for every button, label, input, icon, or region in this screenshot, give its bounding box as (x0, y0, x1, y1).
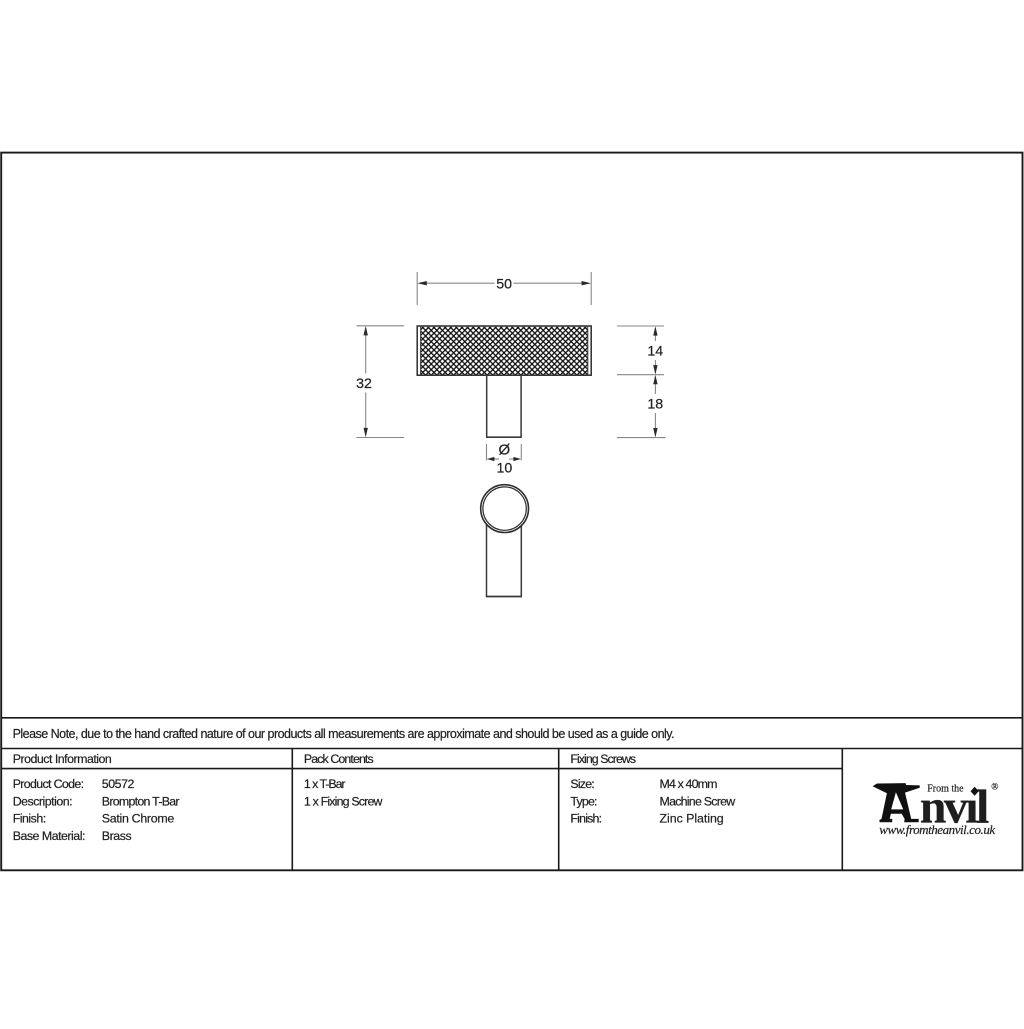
svg-text:1 x Fixing Screw: 1 x Fixing Screw (304, 794, 383, 808)
svg-text:10: 10 (497, 461, 513, 477)
svg-text:Type:: Type: (570, 794, 597, 808)
svg-text:Finish:: Finish: (570, 812, 601, 826)
svg-text:Brass: Brass (102, 829, 132, 843)
svg-text:18: 18 (647, 396, 663, 412)
svg-text:Size:: Size: (570, 777, 594, 791)
svg-text:Base Material:: Base Material: (13, 829, 85, 843)
svg-text:Machine Screw: Machine Screw (660, 794, 736, 808)
svg-text:®: ® (991, 782, 998, 793)
svg-text:www.fromtheanvil.co.uk: www.fromtheanvil.co.uk (879, 822, 995, 837)
svg-text:50: 50 (496, 276, 512, 292)
svg-text:Description:: Description: (13, 794, 72, 808)
svg-text:50572: 50572 (102, 777, 135, 791)
svg-text:Satin Chrome: Satin Chrome (102, 812, 175, 826)
svg-text:Product Code:: Product Code: (13, 777, 84, 791)
svg-text:Please Note, due to the hand c: Please Note, due to the hand crafted nat… (13, 727, 674, 741)
svg-text:Product Information: Product Information (13, 752, 112, 766)
svg-text:M4 x 40mm: M4 x 40mm (660, 777, 718, 791)
svg-text:1 x T-Bar: 1 x T-Bar (304, 777, 346, 791)
svg-text:32: 32 (356, 376, 372, 392)
svg-text:Pack Contents: Pack Contents (304, 752, 374, 766)
svg-text:Fixing Screws: Fixing Screws (570, 752, 636, 766)
svg-text:Ø: Ø (498, 442, 510, 459)
svg-text:14: 14 (647, 344, 663, 360)
svg-text:Brompton T-Bar: Brompton T-Bar (102, 794, 180, 808)
svg-text:Finish:: Finish: (13, 812, 46, 826)
svg-text:Zinc Plating: Zinc Plating (660, 812, 724, 826)
